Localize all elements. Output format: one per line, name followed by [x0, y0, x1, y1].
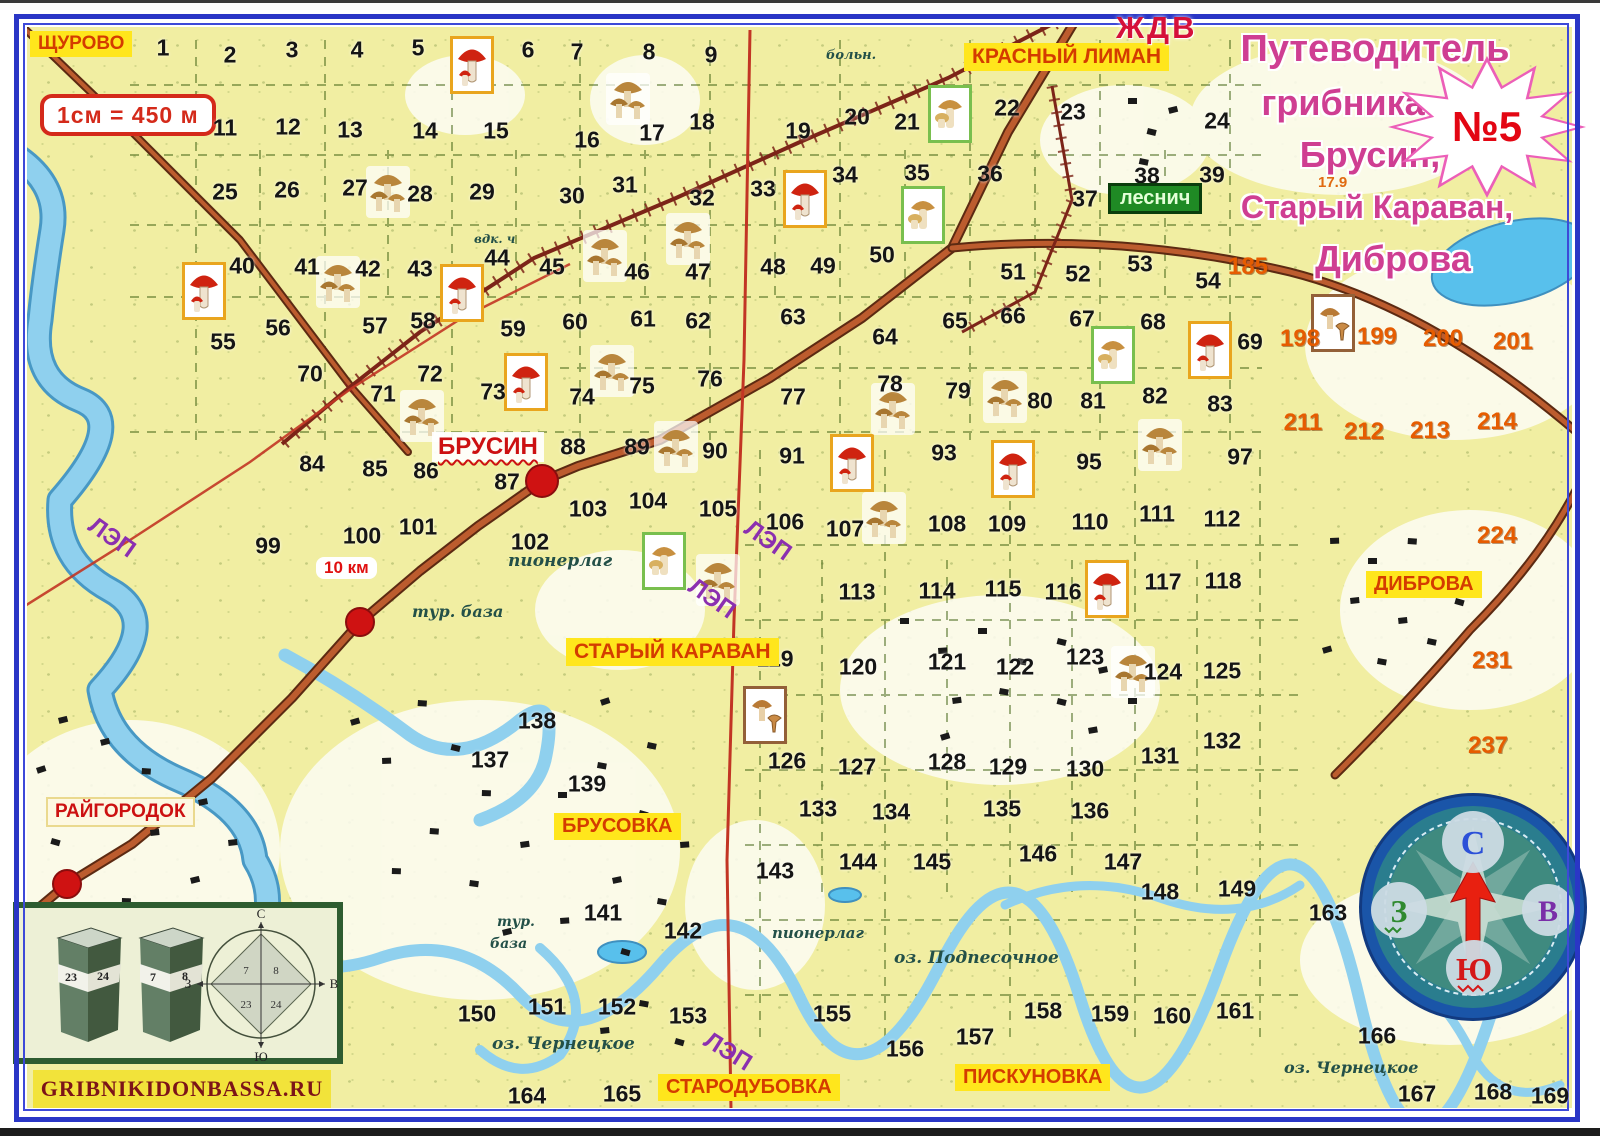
grid-number-145: 145: [913, 849, 951, 876]
legend-west: З: [185, 976, 192, 991]
grid-number-128: 128: [928, 749, 966, 776]
grid-number-85: 85: [362, 456, 388, 483]
place-label-raygorodok: РАЙГОРОДОК: [46, 797, 195, 827]
compass-rose: С З В Ю: [1352, 786, 1594, 1028]
grid-number-122: 122: [996, 654, 1034, 681]
grid-number-114: 114: [918, 578, 955, 605]
grid-number-48: 48: [760, 254, 786, 281]
grid-number-27: 27: [342, 175, 368, 202]
grid-number-42: 42: [355, 256, 381, 283]
grid-number-105: 105: [699, 496, 737, 523]
aspen-mushroom-marker-icon: [783, 170, 827, 228]
grid-number-35: 35: [904, 160, 930, 187]
grid-number-6: 6: [522, 37, 535, 64]
grid-number-93: 93: [931, 440, 957, 467]
grid-number-100: 100: [343, 523, 381, 550]
grid-number-3: 3: [286, 37, 299, 64]
route-point-marker: [525, 464, 559, 498]
grid-number-18: 18: [689, 109, 715, 136]
aspen-mushroom-marker-icon: [182, 262, 226, 320]
grid-number-14: 14: [412, 118, 438, 145]
place-label-krasny-liman: КРАСНЫЙ ЛИМАН: [964, 43, 1169, 71]
grid-number-156: 156: [886, 1036, 924, 1063]
cep-mushroom-marker-icon: [1091, 326, 1135, 384]
honey-mushroom-cluster-icon: [983, 371, 1027, 423]
route-number-211: 211: [1284, 409, 1323, 437]
route-number-237: 237: [1468, 732, 1508, 760]
grid-number-11: 11: [213, 115, 237, 142]
legend-east: В: [330, 976, 339, 991]
cep-mushroom-marker-icon: [928, 85, 972, 143]
grid-number-125: 125: [1203, 658, 1241, 685]
aspen-mushroom-marker-icon: [440, 264, 484, 322]
grid-number-126: 126: [768, 748, 806, 775]
place-label-brusovka: БРУСОВКА: [554, 813, 681, 840]
grid-number-107: 107: [826, 516, 864, 543]
place-label-lesnich: леснич: [1108, 183, 1202, 214]
grid-number-63: 63: [780, 304, 806, 331]
place-label-schurovo: ЩУРОВО: [30, 31, 132, 57]
legend-quadrant: 24: [271, 999, 283, 1011]
grid-number-146: 146: [1019, 841, 1057, 868]
grid-number-50: 50: [869, 242, 895, 269]
title-line: Старый Караван,: [1241, 189, 1513, 226]
grid-number-142: 142: [664, 918, 702, 945]
top-edge-line: [0, 0, 1600, 3]
map-handwriting: база: [490, 936, 527, 952]
grid-number-134: 134: [872, 799, 910, 826]
grid-number-90: 90: [702, 438, 728, 465]
grid-number-36: 36: [977, 161, 1003, 188]
grid-number-4: 4: [351, 37, 364, 64]
grid-number-135: 135: [983, 796, 1021, 823]
grid-number-73: 73: [480, 379, 506, 406]
place-label-distance-note: 10 км: [316, 557, 377, 579]
grid-number-81: 81: [1080, 388, 1106, 415]
honey-mushroom-cluster-icon: [862, 492, 906, 544]
grid-number-153: 153: [669, 1003, 707, 1030]
grid-number-66: 66: [1000, 303, 1026, 330]
grid-number-83: 83: [1207, 391, 1233, 418]
honey-mushroom-cluster-icon: [316, 256, 360, 308]
grid-number-71: 71: [370, 381, 396, 408]
grid-number-95: 95: [1076, 449, 1102, 476]
grid-number-115: 115: [984, 576, 1021, 603]
grid-number-46: 46: [624, 259, 650, 286]
place-label-starodubovka: СТАРОДУБОВКА: [658, 1074, 840, 1101]
map-page: Путеводитель грибника Брусин, Старый Кар…: [0, 0, 1600, 1142]
compass-south-label: Ю: [1456, 951, 1492, 987]
place-label-brusin: БРУСИН: [432, 432, 544, 462]
grid-number-151: 151: [528, 994, 566, 1021]
map-handwriting: пионерлаг: [508, 551, 612, 571]
grid-number-17: 17: [639, 120, 665, 147]
grid-number-139: 139: [568, 771, 606, 798]
place-label-zhdv: ЖДВ: [1116, 10, 1198, 46]
grid-number-101: 101: [399, 514, 437, 541]
place-label-piskunovka: ПИСКУНОВКА: [955, 1064, 1110, 1091]
grid-number-58: 58: [410, 308, 436, 335]
grid-number-160: 160: [1153, 1003, 1191, 1030]
grid-number-99: 99: [255, 533, 281, 560]
aspen-mushroom-marker-icon: [830, 434, 874, 492]
grid-number-1: 1: [157, 35, 170, 62]
grid-number-43: 43: [407, 256, 433, 283]
grid-number-45: 45: [539, 254, 565, 281]
grid-number-103: 103: [569, 496, 607, 523]
issue-number: №5: [1452, 103, 1522, 151]
grid-number-68: 68: [1140, 309, 1166, 336]
grid-number-88: 88: [560, 434, 586, 461]
grid-number-167: 167: [1398, 1081, 1436, 1108]
honey-mushroom-cluster-icon: [366, 166, 410, 218]
legend-north: С: [257, 906, 266, 921]
grid-number-79: 79: [945, 378, 971, 405]
grid-number-158: 158: [1024, 998, 1062, 1025]
aspen-mushroom-marker-icon: [450, 36, 494, 94]
honey-mushroom-cluster-icon: [1138, 419, 1182, 471]
legend-box: 23 24 7 8 С Ю З В 7 8 23 24: [13, 902, 343, 1064]
grid-number-33: 33: [750, 176, 776, 203]
grid-number-157: 157: [956, 1024, 994, 1051]
grid-number-80: 80: [1027, 388, 1053, 415]
grid-number-34: 34: [832, 162, 858, 189]
grid-number-124: 124: [1144, 659, 1182, 686]
grid-number-113: 113: [838, 579, 875, 606]
grid-number-67: 67: [1069, 306, 1095, 333]
grid-number-149: 149: [1218, 876, 1256, 903]
grid-number-62: 62: [685, 308, 711, 335]
grid-number-104: 104: [629, 488, 667, 515]
post-number: 7: [150, 970, 156, 984]
grid-number-25: 25: [212, 179, 238, 206]
grid-number-121: 121: [928, 649, 966, 676]
place-label-dibrova: ДИБРОВА: [1366, 571, 1482, 598]
legend-quadrant: 23: [241, 999, 253, 1011]
grid-number-26: 26: [274, 177, 300, 204]
title-line: Путеводитель: [1241, 28, 1510, 71]
honey-mushroom-cluster-icon: [654, 421, 698, 473]
grid-number-152: 152: [598, 994, 636, 1021]
grid-number-61: 61: [630, 306, 656, 333]
title-line: грибника: [1261, 82, 1424, 124]
grid-number-31: 31: [612, 172, 638, 199]
bottom-edge-bar: [0, 1128, 1600, 1136]
grid-number-74: 74: [569, 384, 595, 411]
grid-number-117: 117: [1144, 569, 1181, 596]
grid-number-131: 131: [1141, 743, 1179, 770]
cep-mushroom-marker-icon: [901, 186, 945, 244]
grid-number-75: 75: [629, 373, 655, 400]
place-label-stary-karavan: СТАРЫЙ КАРАВАН: [566, 638, 779, 666]
grid-number-49: 49: [810, 253, 836, 280]
route-number-201: 201: [1493, 328, 1533, 356]
grid-number-89: 89: [624, 434, 650, 461]
grid-number-77: 77: [780, 384, 806, 411]
route-number-214: 214: [1477, 408, 1517, 436]
route-number-200: 200: [1423, 325, 1463, 353]
title-line: Диброва: [1315, 238, 1471, 280]
website-watermark: GRIBNIKIDONBASSA.RU: [33, 1070, 331, 1108]
grid-number-116: 116: [1044, 579, 1081, 606]
grid-number-159: 159: [1091, 1001, 1129, 1028]
grid-number-29: 29: [469, 179, 495, 206]
grid-number-12: 12: [275, 114, 301, 141]
grid-number-28: 28: [407, 181, 433, 208]
compass-north-label: С: [1461, 825, 1486, 862]
grid-number-23: 23: [1060, 99, 1086, 126]
grid-number-91: 91: [779, 443, 805, 470]
grid-number-150: 150: [458, 1001, 496, 1028]
route-point-marker: [52, 869, 82, 899]
grid-number-109: 109: [988, 511, 1026, 538]
grid-number-169: 169: [1531, 1083, 1569, 1110]
grid-number-56: 56: [265, 315, 291, 342]
grid-number-166: 166: [1358, 1023, 1396, 1050]
map-handwriting: вдк. ч: [474, 232, 515, 246]
grid-number-22: 22: [994, 95, 1020, 122]
grid-number-47: 47: [685, 259, 711, 286]
map-handwriting: больн.: [826, 48, 876, 63]
grid-number-110: 110: [1071, 509, 1108, 536]
grid-number-54: 54: [1195, 268, 1221, 295]
grid-number-137: 137: [471, 747, 509, 774]
map-handwriting: тур. база: [412, 602, 503, 621]
grid-number-87: 87: [494, 469, 520, 496]
grid-number-127: 127: [838, 754, 876, 781]
grid-number-32: 32: [689, 185, 715, 212]
grid-number-165: 165: [603, 1081, 641, 1108]
grid-number-76: 76: [697, 366, 723, 393]
grid-number-144: 144: [839, 849, 877, 876]
grid-number-59: 59: [500, 316, 526, 343]
grid-number-82: 82: [1142, 383, 1168, 410]
post-number: 23: [65, 970, 77, 984]
grid-number-141: 141: [584, 900, 622, 927]
grid-number-19: 19: [785, 118, 811, 145]
cep-mushroom-marker-icon: [642, 532, 686, 590]
grid-number-51: 51: [1000, 259, 1026, 286]
aspen-mushroom-marker-icon: [1085, 560, 1129, 618]
grid-number-60: 60: [562, 309, 588, 336]
grid-number-69: 69: [1237, 329, 1263, 356]
compass-west-label: З: [1391, 893, 1408, 929]
saffron-mushroom-marker-icon: [743, 686, 787, 744]
route-number-185: 185: [1228, 253, 1268, 281]
grid-number-155: 155: [813, 1001, 851, 1028]
quarter-post-icon: 23 24: [58, 928, 121, 1042]
grid-number-130: 130: [1066, 756, 1104, 783]
quarter-post-icon: 7 8: [140, 928, 203, 1042]
grid-number-65: 65: [942, 308, 968, 335]
grid-number-72: 72: [417, 361, 443, 388]
route-number-231: 231: [1472, 647, 1512, 675]
grid-number-13: 13: [337, 117, 363, 144]
aspen-mushroom-marker-icon: [504, 353, 548, 411]
grid-number-147: 147: [1104, 849, 1142, 876]
grid-number-148: 148: [1141, 879, 1179, 906]
grid-number-129: 129: [989, 754, 1027, 781]
route-number-213: 213: [1410, 417, 1450, 445]
grid-number-53: 53: [1127, 251, 1153, 278]
grid-number-21: 21: [894, 109, 920, 136]
map-handwriting: пионерлаг: [772, 924, 864, 942]
grid-number-70: 70: [297, 361, 323, 388]
honey-mushroom-cluster-icon: [606, 73, 650, 125]
grid-number-143: 143: [756, 858, 794, 885]
grid-number-37: 37: [1072, 186, 1098, 213]
grid-number-64: 64: [872, 324, 898, 351]
grid-number-30: 30: [559, 183, 585, 210]
grid-number-84: 84: [299, 451, 325, 478]
map-handwriting: оз. Чернецкое: [492, 1034, 635, 1054]
grid-number-7: 7: [571, 39, 584, 66]
legend-quadrant: 7: [243, 965, 249, 977]
grid-number-112: 112: [1203, 506, 1240, 533]
route-number-224: 224: [1477, 522, 1517, 550]
grid-number-111: 111: [1139, 501, 1175, 528]
grid-number-118: 118: [1204, 568, 1241, 595]
grid-number-120: 120: [839, 654, 877, 681]
grid-number-24: 24: [1204, 108, 1230, 135]
legend-quadrant: 8: [273, 965, 279, 977]
aspen-mushroom-marker-icon: [991, 440, 1035, 498]
map-handwriting: тур.: [497, 914, 535, 930]
grid-number-44: 44: [484, 245, 510, 272]
grid-number-136: 136: [1071, 798, 1109, 825]
route-number-212: 212: [1344, 418, 1384, 446]
grid-number-132: 132: [1203, 728, 1241, 755]
grid-number-163: 163: [1309, 900, 1347, 927]
honey-mushroom-cluster-icon: [666, 213, 710, 265]
grid-number-161: 161: [1216, 998, 1254, 1025]
place-label-route-mark: 17.9: [1318, 174, 1347, 191]
grid-number-15: 15: [483, 118, 509, 145]
grid-number-133: 133: [799, 796, 837, 823]
grid-number-8: 8: [643, 39, 656, 66]
grid-number-39: 39: [1199, 162, 1225, 189]
grid-number-2: 2: [224, 42, 237, 69]
grid-number-138: 138: [518, 708, 556, 735]
scale-box: 1см = 450 м: [40, 94, 216, 136]
grid-number-168: 168: [1474, 1079, 1512, 1106]
grid-number-5: 5: [412, 35, 425, 62]
grid-number-108: 108: [928, 511, 966, 538]
grid-number-41: 41: [294, 254, 320, 281]
grid-number-20: 20: [844, 104, 870, 131]
map-handwriting: оз. Чернецкое: [1284, 1058, 1418, 1077]
grid-number-97: 97: [1227, 444, 1253, 471]
route-number-198: 198: [1280, 325, 1320, 353]
grid-number-16: 16: [574, 127, 600, 154]
legend-south: Ю: [254, 1049, 267, 1064]
grid-number-123: 123: [1066, 644, 1104, 671]
grid-number-9: 9: [705, 42, 718, 69]
honey-mushroom-cluster-icon: [583, 230, 627, 282]
aspen-mushroom-marker-icon: [1188, 321, 1232, 379]
route-number-199: 199: [1357, 323, 1397, 351]
grid-number-52: 52: [1065, 261, 1091, 288]
grid-number-57: 57: [362, 313, 388, 340]
grid-number-55: 55: [210, 329, 236, 356]
grid-number-164: 164: [508, 1083, 546, 1110]
post-number: 24: [97, 969, 109, 983]
route-point-marker: [345, 607, 375, 637]
honey-mushroom-cluster-icon: [590, 345, 634, 397]
grid-number-40: 40: [229, 253, 255, 280]
map-handwriting: оз. Подпесочное: [894, 948, 1059, 968]
grid-number-78: 78: [877, 371, 903, 398]
compass-east-label: В: [1538, 895, 1558, 928]
